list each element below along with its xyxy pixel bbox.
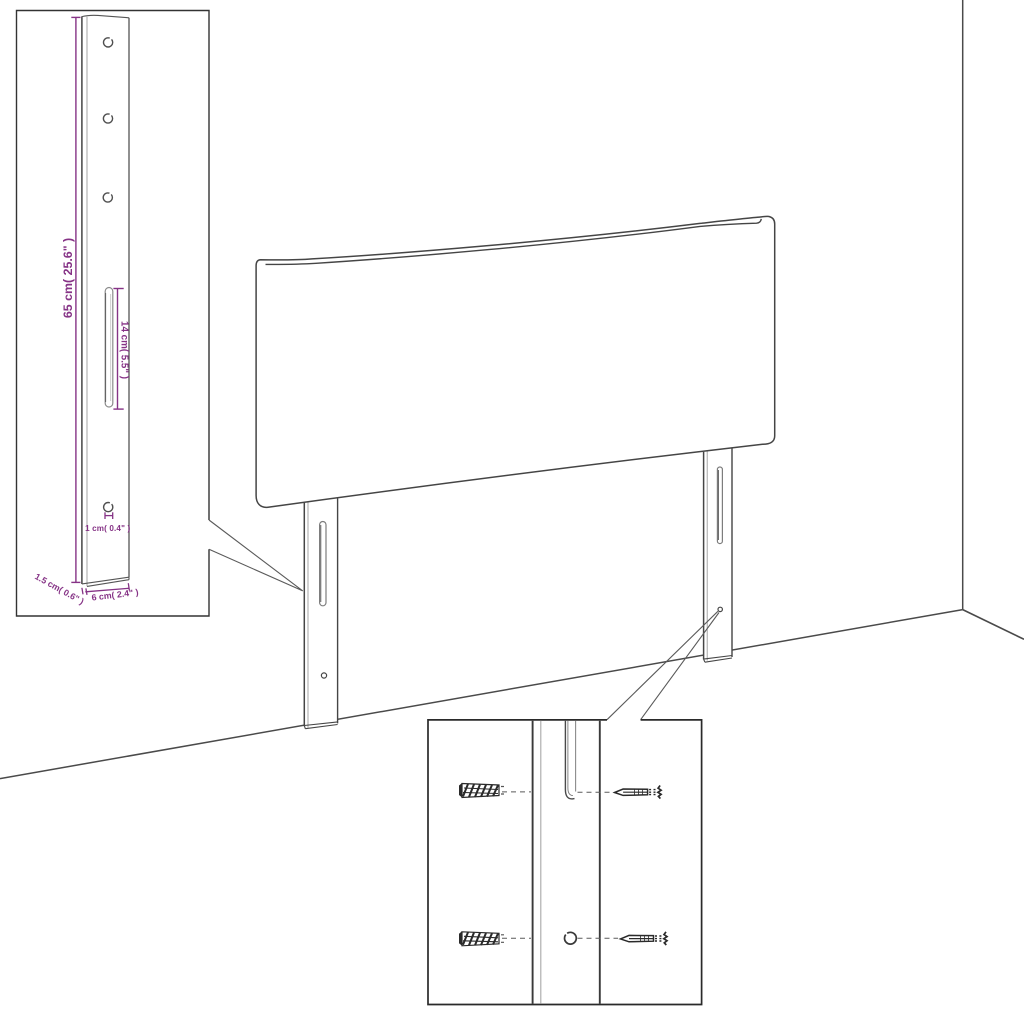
svg-text:14 cm( 5.5" ): 14 cm( 5.5" ) <box>119 321 130 379</box>
svg-text:65 cm( 25.6" ): 65 cm( 25.6" ) <box>61 238 75 318</box>
svg-text:1 cm( 0.4" ): 1 cm( 0.4" ) <box>85 524 130 533</box>
